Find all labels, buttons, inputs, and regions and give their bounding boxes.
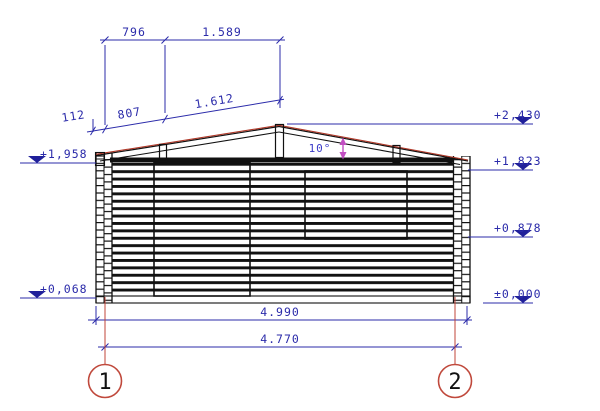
grid-bubble-label: 2 [448, 370, 461, 395]
elevation-label: +0,878 [494, 221, 542, 235]
bottom-dimensions: 4.990 4.770 [88, 305, 472, 351]
elevation-label: +0,068 [40, 282, 88, 296]
roof-angle-label: 10° [309, 142, 332, 155]
elevation-drawing: +2,430 +1,823 +0,878 ±0,000 +1,958 +0,06… [0, 0, 600, 411]
left-corner-post [96, 153, 112, 303]
elevation-label: +1,823 [494, 154, 542, 168]
dim-label: 1.589 [202, 25, 242, 39]
dim-label: 112 [61, 107, 87, 125]
building-body [96, 153, 470, 303]
dim-label: 4.770 [260, 332, 300, 346]
elevation-label: +1,958 [40, 147, 88, 161]
grid-bubble-label: 1 [98, 370, 111, 395]
roof-edge-left [96, 125, 279, 154]
dim-label: 796 [122, 25, 146, 39]
drawing-svg: +2,430 +1,823 +0,878 ±0,000 +1,958 +0,06… [0, 0, 600, 411]
top-dimensions: 796 1.589 112 807 1.612 [61, 25, 285, 135]
elevation-label: +2,430 [494, 108, 542, 122]
right-corner-post [454, 156, 471, 303]
log-siding [112, 163, 454, 296]
elevation-label: ±0,000 [494, 287, 542, 301]
roof-ridge-post [276, 125, 284, 158]
roof-edge-right [279, 125, 468, 160]
base-sill [96, 296, 470, 303]
dim-label: 4.990 [260, 305, 300, 319]
dim-label: 807 [116, 104, 142, 122]
